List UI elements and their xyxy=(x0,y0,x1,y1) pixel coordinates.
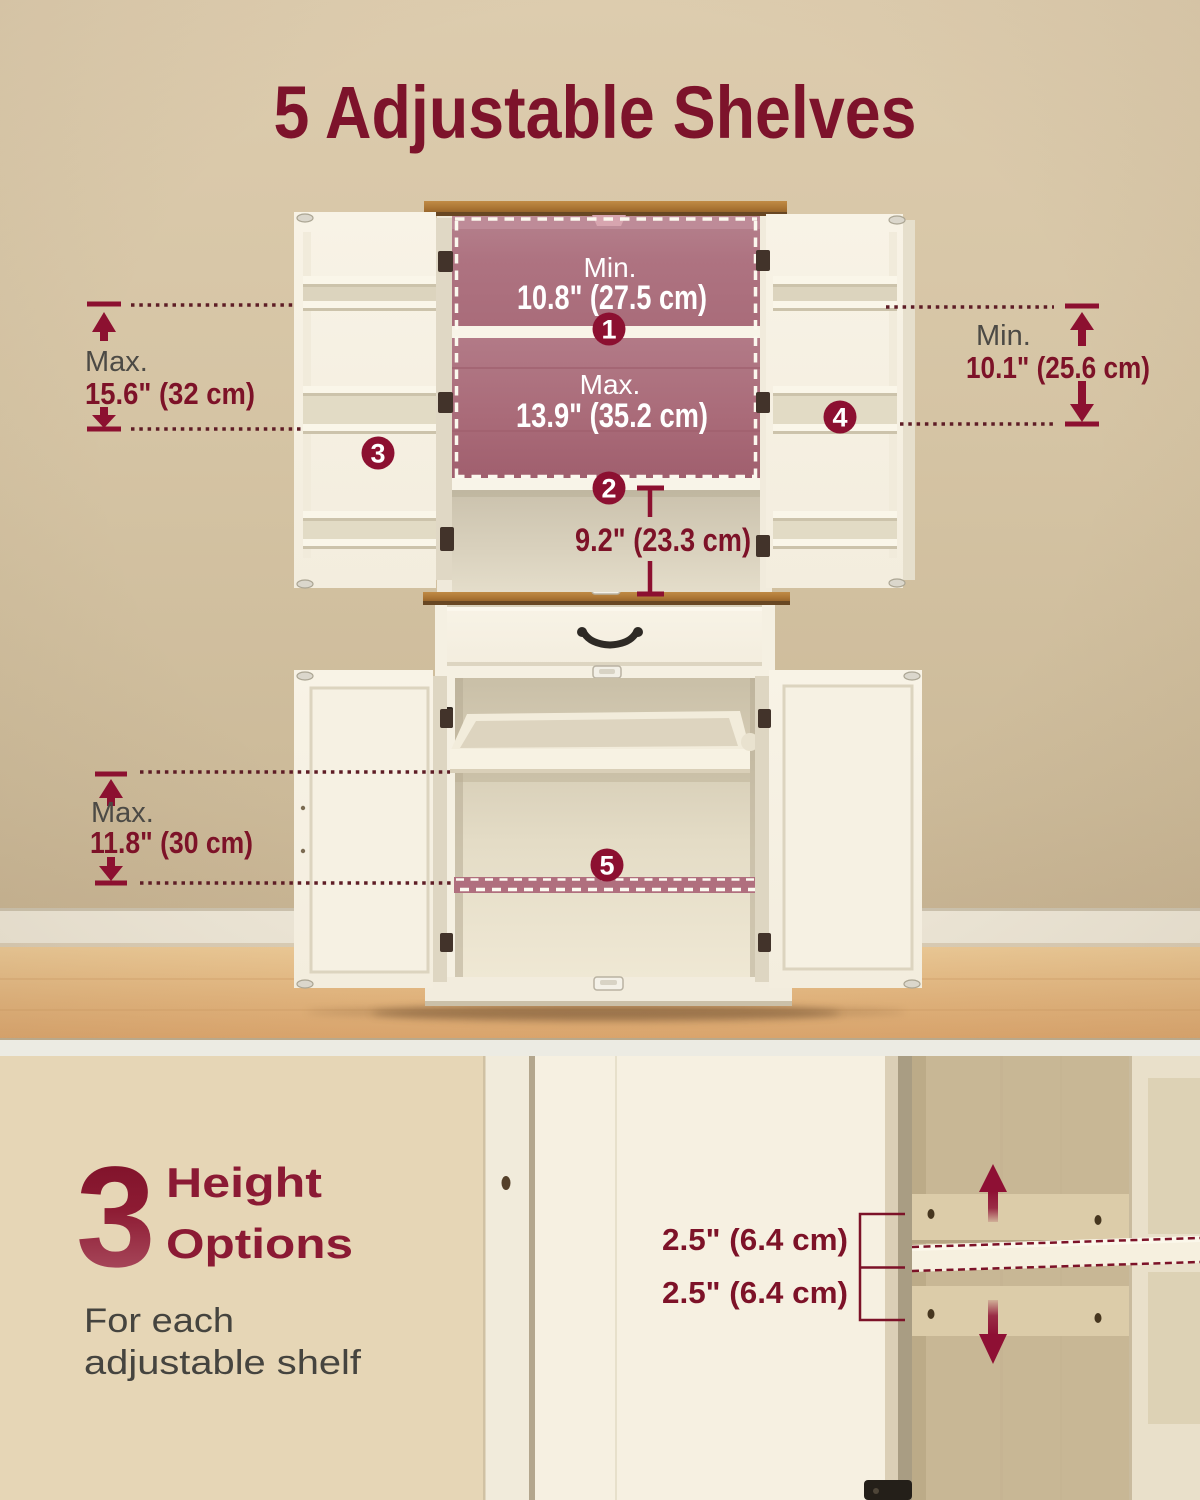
svg-text:3: 3 xyxy=(76,1138,156,1297)
svg-text:Min.: Min. xyxy=(976,320,1031,352)
svg-text:3: 3 xyxy=(370,439,385,469)
svg-text:Max.: Max. xyxy=(85,346,148,378)
svg-text:5 Adjustable Shelves: 5 Adjustable Shelves xyxy=(274,71,917,154)
svg-text:15.6" (32 cm): 15.6" (32 cm) xyxy=(85,376,255,411)
svg-text:13.9" (35.2 cm): 13.9" (35.2 cm) xyxy=(516,397,708,435)
svg-text:2: 2 xyxy=(601,474,616,504)
svg-text:9.2" (23.3 cm): 9.2" (23.3 cm) xyxy=(575,522,751,558)
svg-text:5: 5 xyxy=(599,851,614,881)
svg-text:For each: For each xyxy=(84,1302,234,1340)
svg-text:Max.: Max. xyxy=(580,369,641,400)
svg-text:4: 4 xyxy=(832,403,847,433)
svg-text:10.8" (27.5 cm): 10.8" (27.5 cm) xyxy=(517,279,707,317)
svg-text:1: 1 xyxy=(601,315,616,345)
svg-text:2.5" (6.4 cm): 2.5" (6.4 cm) xyxy=(662,1222,848,1257)
svg-text:2.5" (6.4 cm): 2.5" (6.4 cm) xyxy=(662,1275,848,1310)
svg-text:Height: Height xyxy=(166,1159,322,1206)
svg-text:10.1" (25.6 cm): 10.1" (25.6 cm) xyxy=(966,350,1150,385)
svg-text:Options: Options xyxy=(166,1220,353,1267)
svg-text:adjustable shelf: adjustable shelf xyxy=(84,1344,362,1382)
svg-text:11.8" (30 cm): 11.8" (30 cm) xyxy=(90,825,253,860)
